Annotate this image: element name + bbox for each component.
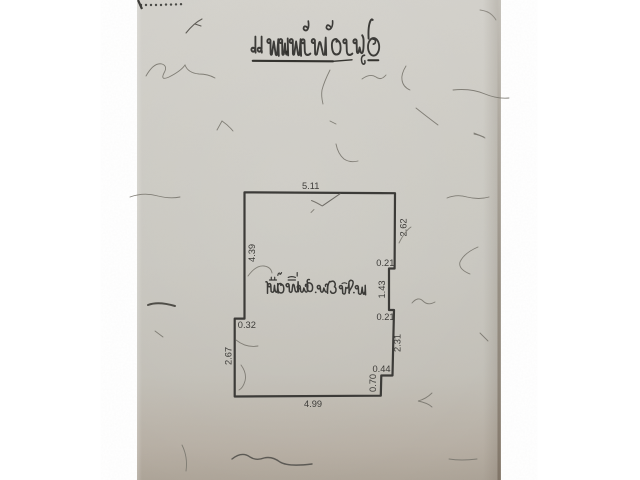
svg-text:0.21: 0.21 <box>377 312 395 322</box>
svg-text:2.31: 2.31 <box>393 334 403 352</box>
svg-text:0.32: 0.32 <box>238 320 256 330</box>
svg-text:0.21: 0.21 <box>376 258 394 268</box>
svg-text:0.44: 0.44 <box>373 364 391 374</box>
svg-text:4.99: 4.99 <box>304 399 322 409</box>
svg-text:4.39: 4.39 <box>247 244 257 262</box>
svg-text:2.62: 2.62 <box>399 218 409 236</box>
svg-text:1.43: 1.43 <box>377 280 387 298</box>
svg-text:2.67: 2.67 <box>224 347 234 365</box>
svg-text:0.70: 0.70 <box>368 374 378 392</box>
svg-text:5.11: 5.11 <box>302 181 319 191</box>
